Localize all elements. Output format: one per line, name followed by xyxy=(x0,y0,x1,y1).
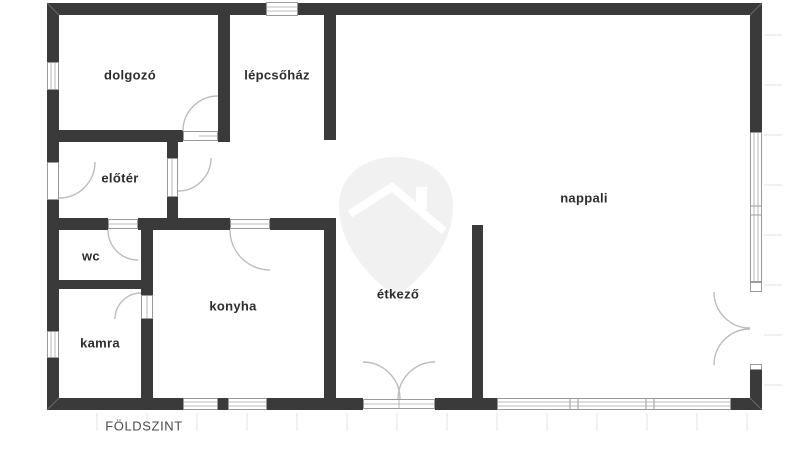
wall-horizontal-segment-1 xyxy=(59,218,108,230)
door-sill-foyer xyxy=(168,159,178,197)
wall-bottom-mullion xyxy=(218,398,228,410)
room-label-kamra: kamra xyxy=(80,336,120,351)
room-label-konyha: konyha xyxy=(209,299,256,314)
glazing-joint-bottom-1 xyxy=(570,399,578,410)
wall-left-segment-3 xyxy=(47,200,59,331)
terrace-door-sill-top xyxy=(751,283,762,292)
door-arc-kitchen xyxy=(230,230,270,270)
room-label-etkezo: étkező xyxy=(377,287,419,302)
wall-kamra-right-upper xyxy=(141,230,153,295)
window-kamra-left xyxy=(48,332,59,358)
room-label-lepcsohaz: lépcsőház xyxy=(244,68,310,83)
floor-title: FÖLDSZINT xyxy=(105,419,183,434)
room-label-dolgozo: dolgozó xyxy=(104,68,156,83)
wall-top-left-segment xyxy=(47,3,267,15)
wall-staircase-right xyxy=(324,15,336,140)
window-living-bottom-glazing xyxy=(498,399,731,410)
glazing-joint-bottom-2 xyxy=(646,399,654,410)
wall-right-segment-1 xyxy=(750,3,762,132)
door-arc-terrace-top-leaf xyxy=(714,292,750,328)
wall-horizontal-segment-2 xyxy=(138,218,230,230)
door-arc-foyer xyxy=(178,158,211,191)
wall-bottom-segment-3 xyxy=(435,398,497,410)
entrance-door-frame xyxy=(48,163,59,200)
door-arc-dining-right-leaf xyxy=(398,362,435,399)
room-label-nappali: nappali xyxy=(560,191,608,206)
window-staircase-top xyxy=(267,3,298,16)
glazing-joint-right xyxy=(751,206,762,215)
wall-foyer-right-upper xyxy=(167,130,178,158)
wall-dolgozo-bottom xyxy=(59,130,183,142)
door-arc-wc xyxy=(108,230,138,260)
door-arc-kamra xyxy=(115,293,141,319)
house-pin-watermark-icon xyxy=(339,157,453,298)
wall-bottom-segment-2 xyxy=(267,398,363,410)
window-kitchen-bottom-2 xyxy=(229,399,267,410)
wall-bottom-segment-1 xyxy=(47,398,183,410)
wall-kamra-right-lower xyxy=(141,319,153,398)
window-kitchen-bottom-1 xyxy=(184,399,218,410)
watermark-chimney xyxy=(416,187,427,209)
wall-left-segment-2 xyxy=(47,90,59,162)
wall-staircase-left xyxy=(218,15,230,142)
wall-left-segment-1 xyxy=(47,3,59,62)
door-arc-dining-left-leaf xyxy=(363,362,400,399)
door-arc-dolgozo xyxy=(183,96,218,131)
door-arc-entrance xyxy=(59,162,95,198)
floor-plan-canvas: dolgozó lépcsőház előtér wc kamra konyha… xyxy=(0,0,800,450)
wall-kitchen-dining xyxy=(324,218,336,398)
door-arc-terrace-bottom-leaf xyxy=(714,329,750,365)
wall-top-right-segment xyxy=(297,3,762,15)
window-dolgozo-left xyxy=(48,63,59,90)
terrace-door-sill-bottom xyxy=(751,365,762,370)
wall-wc-kamra-divider xyxy=(59,280,152,289)
room-label-wc: wc xyxy=(82,249,100,264)
wall-dining-living xyxy=(472,225,483,398)
room-label-eloter: előtér xyxy=(101,171,138,186)
